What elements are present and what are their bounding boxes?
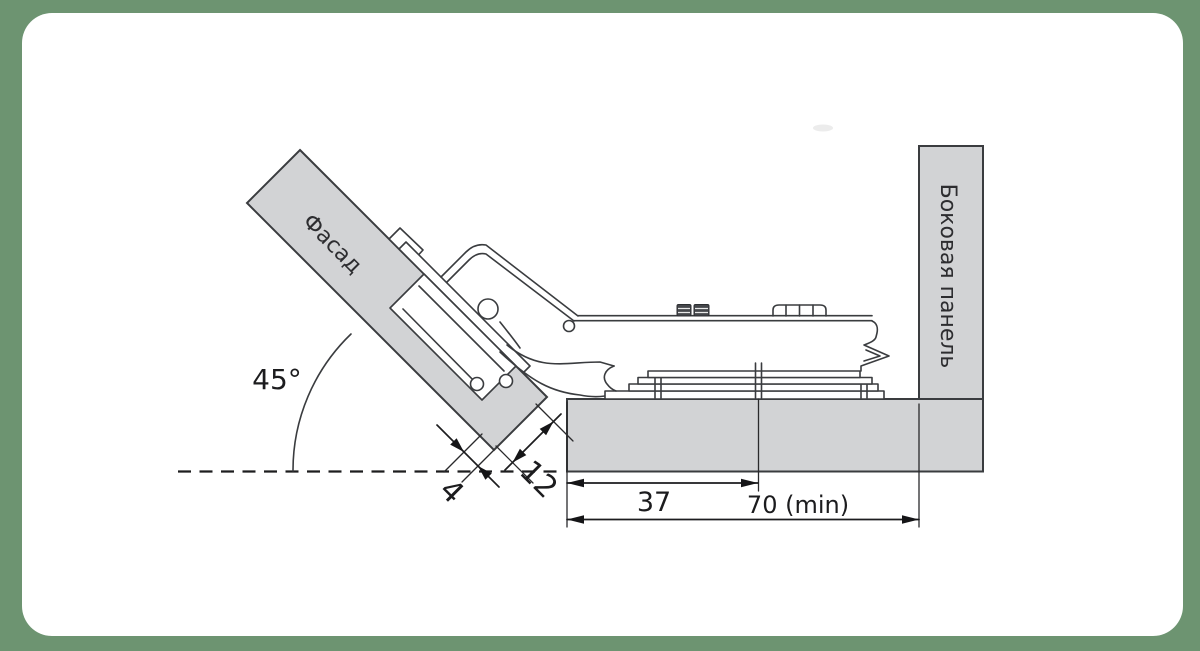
dim70-arrow (567, 515, 584, 524)
hinge-diagram: 45° 4 12 (0, 0, 1200, 651)
dim37-label: 37 (637, 487, 671, 518)
cup-screw-hole (500, 375, 513, 388)
dim70-arrow (902, 515, 919, 524)
dim4-tick (444, 434, 482, 472)
dim70-label: 70 (min) (747, 491, 849, 519)
angle-arc (293, 334, 351, 471)
cup-screw-hole (471, 378, 484, 391)
dim37-arrow (741, 479, 758, 488)
adjustment-screws (677, 305, 709, 317)
pivot-boss (478, 299, 498, 319)
faint-smudge (813, 125, 833, 132)
arm-hole (564, 321, 575, 332)
plate-base (605, 391, 884, 399)
dim4-label: 4 (432, 473, 470, 511)
plate-nose (604, 366, 616, 391)
arm-rear-hook (861, 321, 889, 371)
dimension-70: 70 (min) (567, 491, 919, 524)
plate-seat (648, 371, 860, 378)
dim37-arrow (567, 479, 584, 488)
screenshot-stage: 45° 4 12 (0, 0, 1200, 651)
dimension-37: 37 (567, 479, 758, 518)
plate-layer (629, 384, 878, 391)
hinge-cup (389, 228, 530, 400)
mounting-plate (604, 363, 884, 399)
side-panel-label: Боковая панель (935, 184, 960, 369)
dim12-label: 12 (512, 454, 564, 506)
bottom-panel (567, 399, 983, 472)
angle-label: 45° (252, 363, 302, 396)
cam-screw (773, 305, 826, 316)
